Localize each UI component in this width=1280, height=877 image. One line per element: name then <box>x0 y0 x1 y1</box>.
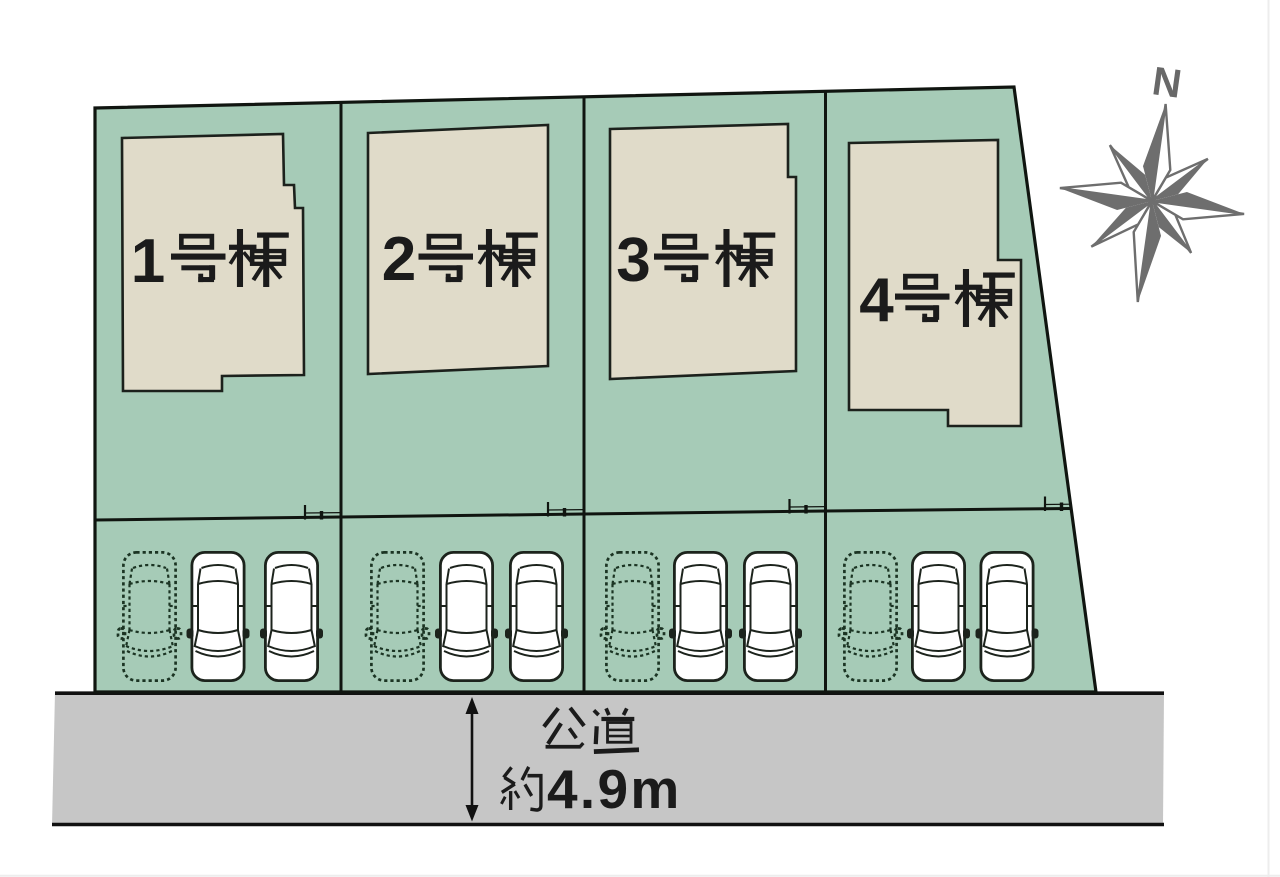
svg-text:2: 2 <box>382 225 416 294</box>
svg-text:4: 4 <box>859 266 894 335</box>
svg-text:N: N <box>1149 59 1184 107</box>
svg-text:1: 1 <box>131 227 165 296</box>
svg-text:3: 3 <box>616 226 650 295</box>
svg-text:4.9m: 4.9m <box>547 758 682 820</box>
